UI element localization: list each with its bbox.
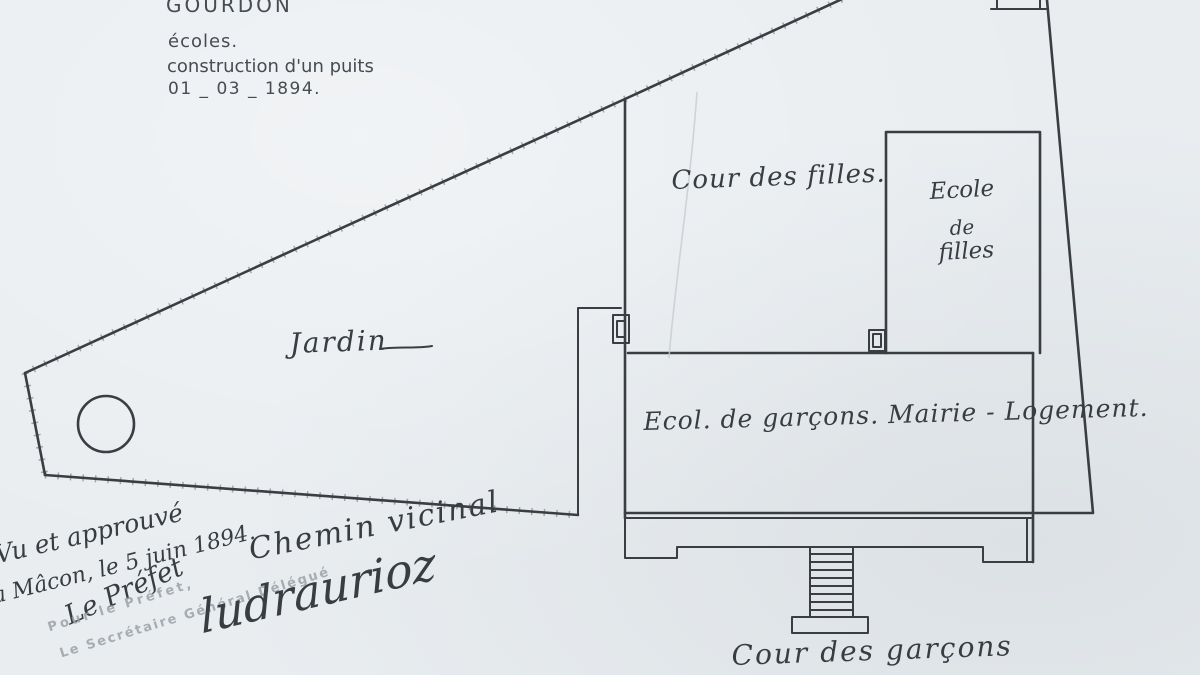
label-ecole-filles-line2: de xyxy=(949,215,975,240)
top-small-structure xyxy=(991,0,1046,9)
header-object: écoles. xyxy=(168,31,238,52)
gate-symbol-garden xyxy=(613,315,629,343)
staircase xyxy=(792,547,868,633)
gate-symbol-girls-school xyxy=(869,330,885,351)
well-circle xyxy=(78,396,134,452)
label-ecole-filles-line1: Ecole xyxy=(929,176,995,205)
scanned-plan-page: GOURDON écoles. construction d'un puits … xyxy=(0,0,1200,675)
label-ecole-filles-line3: filles xyxy=(938,237,995,266)
paper-crease xyxy=(669,92,697,358)
header-commune: GOURDON xyxy=(166,0,293,17)
header-date: 01 _ 03 _ 1894. xyxy=(168,79,321,99)
header-work: construction d'un puits xyxy=(167,56,374,77)
right-boundary-line xyxy=(1047,0,1093,513)
main-building-band xyxy=(625,353,1092,562)
label-jardin: Jardin xyxy=(289,324,388,360)
